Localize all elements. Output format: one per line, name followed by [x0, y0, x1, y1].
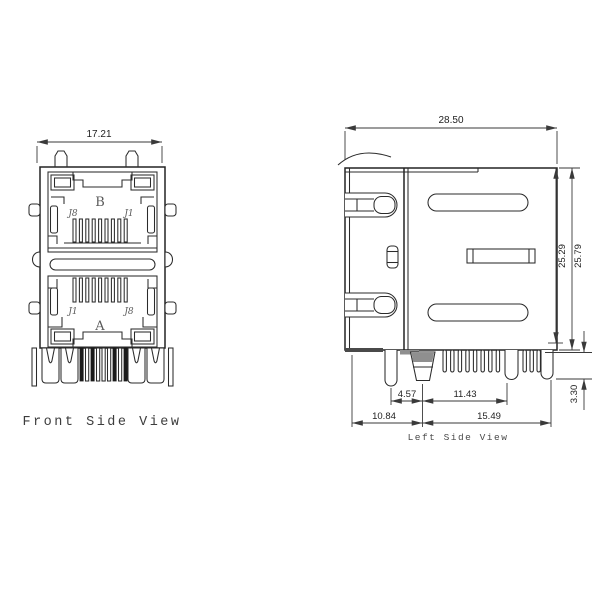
deep-leg	[505, 350, 518, 380]
dim-front-width: 17.21	[86, 129, 111, 140]
dim-front-to-center: 10.84	[372, 411, 396, 422]
side-view: 28.50	[338, 115, 592, 443]
technical-drawing: 17.21	[0, 0, 600, 600]
side-tab	[29, 302, 40, 314]
port-b-keyway	[73, 172, 132, 187]
side-bump	[165, 252, 173, 267]
port-a-label: A	[94, 319, 105, 334]
port-b-contacts	[73, 219, 127, 242]
dim-center-to-back: 15.49	[477, 411, 501, 422]
shield-leg	[42, 348, 59, 383]
latch-finger-bottom	[345, 293, 397, 317]
spring-finger-arc	[338, 153, 391, 165]
latch-slot	[148, 288, 155, 315]
port-a-keyway	[73, 332, 132, 347]
port-a-pin-left: J1	[66, 307, 77, 317]
bottom-lip	[345, 348, 383, 352]
shield-slot-top	[428, 194, 528, 211]
shield-tab-middle	[467, 249, 535, 263]
port-b-pin-right: J1	[122, 209, 133, 219]
port-a: J1 J8 A	[48, 276, 157, 347]
shield-leg	[61, 348, 78, 383]
port-a-pin-right: J8	[122, 307, 134, 317]
dim-height-inner: 25.29	[557, 244, 568, 268]
front-leg	[385, 350, 397, 386]
shield-leg	[128, 348, 145, 383]
front-pins	[32, 348, 173, 386]
front-view: 17.21	[22, 129, 181, 430]
side-tab	[165, 204, 176, 216]
port-b: B J8 J1	[48, 172, 157, 252]
divider-slot	[50, 259, 155, 270]
latch-finger-top	[345, 193, 397, 217]
shield-leg	[147, 348, 164, 383]
latch-slot	[51, 206, 58, 233]
dim-height-outer: 25.79	[573, 244, 584, 268]
front-width-dimension: 17.21	[37, 129, 162, 163]
shield-slot-bottom	[428, 304, 528, 321]
side-tab	[29, 204, 40, 216]
latch-slot	[51, 288, 58, 315]
top-peg-right	[126, 151, 138, 167]
top-peg-left	[55, 151, 67, 167]
side-tab	[165, 302, 176, 314]
port-b-label: B	[95, 195, 105, 210]
side-pins	[385, 350, 553, 386]
deep-leg	[541, 350, 553, 379]
front-view-title: Front Side View	[22, 415, 181, 430]
dim-pin-protrusion: 3.30	[569, 385, 580, 404]
face-buckle	[387, 246, 398, 268]
dim-leg-offset: 4.57	[398, 389, 417, 400]
side-height-dimensions: 25.29 25.79	[548, 168, 584, 350]
side-width-dimension: 28.50	[345, 115, 557, 164]
side-view-title: Left Side View	[408, 432, 509, 443]
side-body	[338, 153, 557, 350]
port-a-contacts	[73, 278, 127, 302]
dim-pin-span: 11.43	[453, 389, 476, 400]
dim-side-width: 28.50	[438, 115, 463, 126]
side-bump	[33, 252, 41, 267]
drawing-canvas: 17.21	[0, 0, 600, 600]
latch-slot	[148, 206, 155, 233]
port-b-pin-left: J8	[66, 209, 78, 219]
